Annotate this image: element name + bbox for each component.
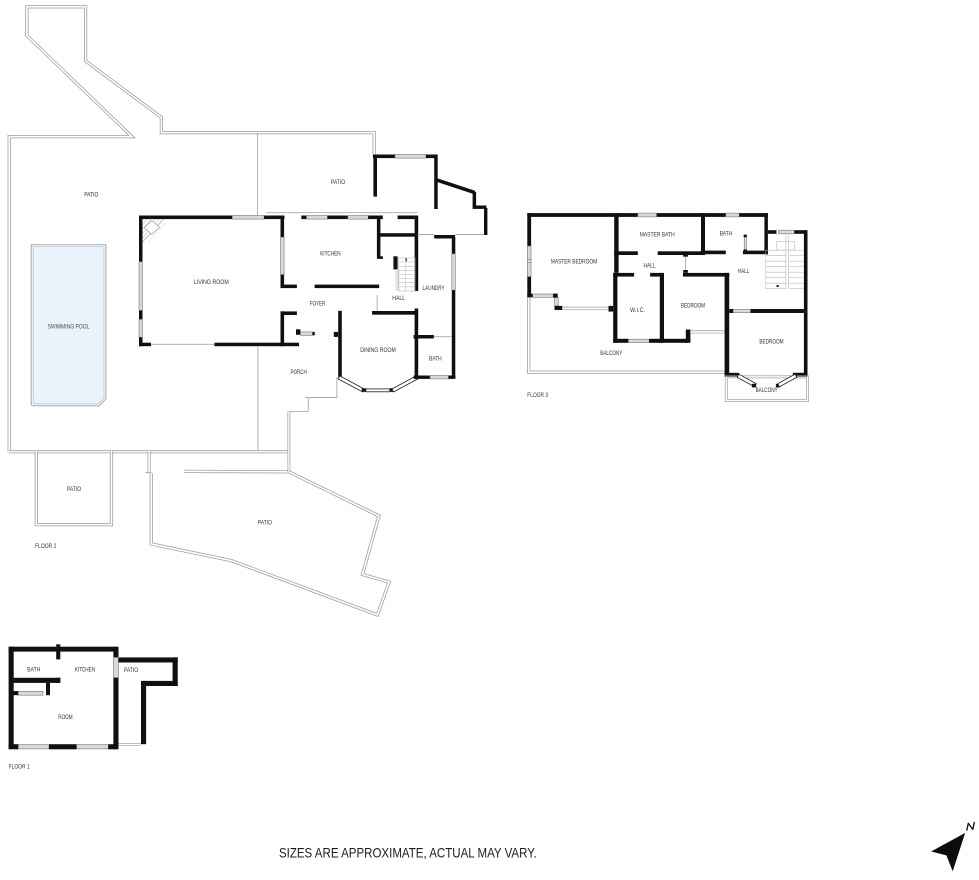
svg-text:BEDROOM: BEDROOM [759,339,783,346]
svg-text:HALL: HALL [643,262,656,269]
svg-text:BATH: BATH [27,667,40,674]
svg-text:PATIO: PATIO [124,667,138,674]
svg-text:PATIO: PATIO [84,192,98,199]
svg-text:BALCONY: BALCONY [756,387,778,394]
svg-text:FOYER: FOYER [310,301,326,308]
svg-text:SWIMMING POOL: SWIMMING POOL [48,324,90,331]
svg-text:SIZES ARE APPROXIMATE, ACTUAL: SIZES ARE APPROXIMATE, ACTUAL MAY VARY. [279,844,537,860]
svg-text:FLOOR 2: FLOOR 2 [35,543,57,550]
svg-text:PORCH: PORCH [290,369,306,376]
svg-text:KITCHEN: KITCHEN [320,250,340,257]
svg-text:HALL: HALL [392,295,405,302]
svg-text:FLOOR 1: FLOOR 1 [9,763,30,770]
svg-text:MASTER BATH: MASTER BATH [640,232,675,239]
svg-text:BATH: BATH [429,356,442,363]
svg-text:PATIO: PATIO [331,179,345,186]
svg-text:BALCONY: BALCONY [600,350,622,357]
svg-text:BATH: BATH [720,231,733,238]
svg-text:KITCHEN: KITCHEN [75,667,95,674]
svg-text:PATIO: PATIO [258,520,272,527]
svg-text:BEDROOM: BEDROOM [681,303,705,310]
svg-text:DINING ROOM: DINING ROOM [360,347,396,354]
svg-text:ROOM: ROOM [58,714,72,721]
svg-text:FLOOR 3: FLOOR 3 [527,392,548,399]
svg-text:PATIO: PATIO [67,486,81,493]
svg-text:LIVING ROOM: LIVING ROOM [194,279,229,286]
svg-text:MASTER BEDROOM: MASTER BEDROOM [551,258,597,265]
svg-text:W.I.C.: W.I.C. [630,307,645,314]
svg-text:HALL: HALL [738,268,750,275]
svg-text:LAUNDRY: LAUNDRY [423,285,445,292]
